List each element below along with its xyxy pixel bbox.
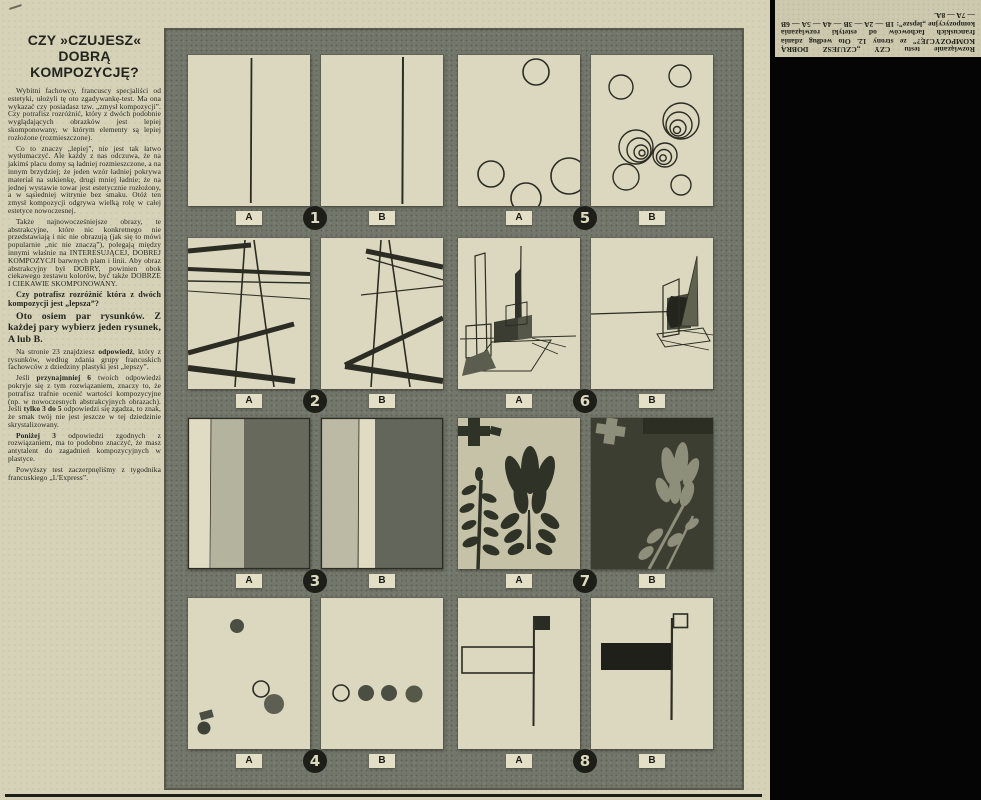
pair-1-art-a (188, 55, 310, 206)
paragraph-segment: Co to znaczy „lepiej”, nie jest tak łatw… (8, 144, 161, 215)
pair-5-art-b (591, 55, 713, 206)
pair-number-badge: 2 (303, 389, 327, 413)
pair-2-art-b (321, 238, 443, 389)
pair-1-art-b (321, 55, 443, 206)
paragraph-segment: Czy potrafisz rozróżnić która z dwóch ko… (8, 290, 161, 308)
panel-label-b: B (639, 211, 665, 225)
panel-label-b: B (369, 574, 395, 588)
panel-label-b: B (369, 394, 395, 408)
pair-4-art-a (188, 598, 310, 749)
pair-8-art-b (591, 598, 713, 749)
article-paragraph: Co to znaczy „lepiej”, nie jest tak łatw… (8, 145, 161, 215)
pair-3-panel-a (188, 418, 310, 569)
panel-label-a: A (506, 754, 532, 768)
pair-6-art-a (458, 238, 580, 389)
paragraph-segment: Wybitni fachowcy, francuscy specjaliści … (8, 86, 161, 142)
pair-5-panel-a (458, 55, 580, 206)
pair-6-panel-a (458, 238, 580, 389)
article-paragraphs: Wybitni fachowcy, francuscy specjaliści … (8, 87, 161, 481)
pair-7-panel-b (591, 418, 713, 569)
scanned-magazine-page: CZY »CZUJESZ« DOBRĄ KOMPOZYCJĘ? Wybitni … (0, 0, 981, 800)
panel-label-a: A (236, 394, 262, 408)
paragraph-segment: Powyższy test zaczerpnęliśmy z tygodnika… (8, 465, 161, 482)
answer-text: Rozwiązanie testu CZY „CZUJESZ DOBRĄ KOM… (775, 9, 981, 57)
pair-8-art-a (458, 598, 580, 749)
page-title: CZY »CZUJESZ« DOBRĄ KOMPOZYCJĘ? (8, 32, 161, 80)
pair-4: A 4 B (188, 598, 444, 778)
article-paragraph: Na stronie 23 znajdziesz odpowiedź, któr… (8, 348, 161, 371)
pair-4-art-b (321, 598, 443, 749)
paragraph-segment: Także najnowocześniejsze obrazy, te abst… (8, 217, 161, 288)
quiz-grid: A 1 B (164, 28, 744, 790)
article-paragraph: Jeśli przynajmniej 6 twoich odpowiedzi p… (8, 374, 161, 429)
pair-number-badge: 5 (573, 206, 597, 230)
pair-number-badge: 7 (573, 569, 597, 593)
panel-label-a: A (506, 211, 532, 225)
answer-clip: Rozwiązanie testu CZY „CZUJESZ DOBRĄ KOM… (775, 0, 981, 57)
panel-label-a: A (236, 211, 262, 225)
stray-pen-mark (9, 4, 22, 10)
article-paragraph: Także najnowocześniejsze obrazy, te abst… (8, 218, 161, 288)
pair-number-badge: 8 (573, 749, 597, 773)
paper-page: CZY »CZUJESZ« DOBRĄ KOMPOZYCJĘ? Wybitni … (0, 0, 770, 800)
pair-2-art-a (188, 238, 310, 389)
pair-8-panel-a (458, 598, 580, 749)
pair-1-panel-a (188, 55, 310, 206)
panel-label-b: B (639, 394, 665, 408)
pair-number-badge: 1 (303, 206, 327, 230)
panel-label-a: A (506, 574, 532, 588)
article-paragraph: Oto osiem par rysunków. Z każdej pary wy… (8, 311, 161, 345)
pair-1-panel-b (321, 55, 443, 206)
pair-number-badge: 6 (573, 389, 597, 413)
pair-8-panel-b (591, 598, 713, 749)
pair-3-art-b (321, 418, 443, 569)
pair-7: A 7 B (458, 418, 714, 598)
pair-6-panel-b (591, 238, 713, 389)
article-paragraph: Czy potrafisz rozróżnić która z dwóch ko… (8, 291, 161, 308)
pair-5-panel-b (591, 55, 713, 206)
article-paragraph: Powyższy test zaczerpnęliśmy z tygodnika… (8, 466, 161, 482)
paragraph-segment: Oto osiem par rysunków. Z każdej pary wy… (8, 311, 161, 344)
pair-6-art-b (591, 238, 713, 389)
pair-number-badge: 4 (303, 749, 327, 773)
pair-2-panel-a (188, 238, 310, 389)
panel-label-a: A (506, 394, 532, 408)
panel-label-b: B (369, 211, 395, 225)
panel-label-a: A (236, 754, 262, 768)
pair-3-art-a (188, 418, 310, 569)
panel-label-b: B (639, 574, 665, 588)
pair-2: A 2 B (188, 238, 444, 418)
article-paragraph: Poniżej 3 odpowiedzi zgodnych z rozwiąza… (8, 432, 161, 463)
pair-5-art-a (458, 55, 580, 206)
pair-8: A 8 B (458, 598, 714, 778)
panel-label-a: A (236, 574, 262, 588)
panel-label-b: B (639, 754, 665, 768)
article-column: CZY »CZUJESZ« DOBRĄ KOMPOZYCJĘ? Wybitni … (8, 32, 161, 484)
bottom-rule (5, 794, 762, 797)
pair-7-art-b (591, 418, 713, 569)
pair-2-panel-b (321, 238, 443, 389)
pair-3-panel-b (321, 418, 443, 569)
pair-7-panel-a (458, 418, 580, 569)
pair-4-panel-a (188, 598, 310, 749)
article-paragraph: Wybitni fachowcy, francuscy specjaliści … (8, 87, 161, 142)
pair-6: A 6 B (458, 238, 714, 418)
pair-3: A 3 B (188, 418, 444, 598)
pair-7-art-a (458, 418, 580, 569)
pair-number-badge: 3 (303, 569, 327, 593)
pair-4-panel-b (321, 598, 443, 749)
panel-label-b: B (369, 754, 395, 768)
pair-5: A 5 B (458, 55, 714, 235)
pair-1: A 1 B (188, 55, 444, 235)
